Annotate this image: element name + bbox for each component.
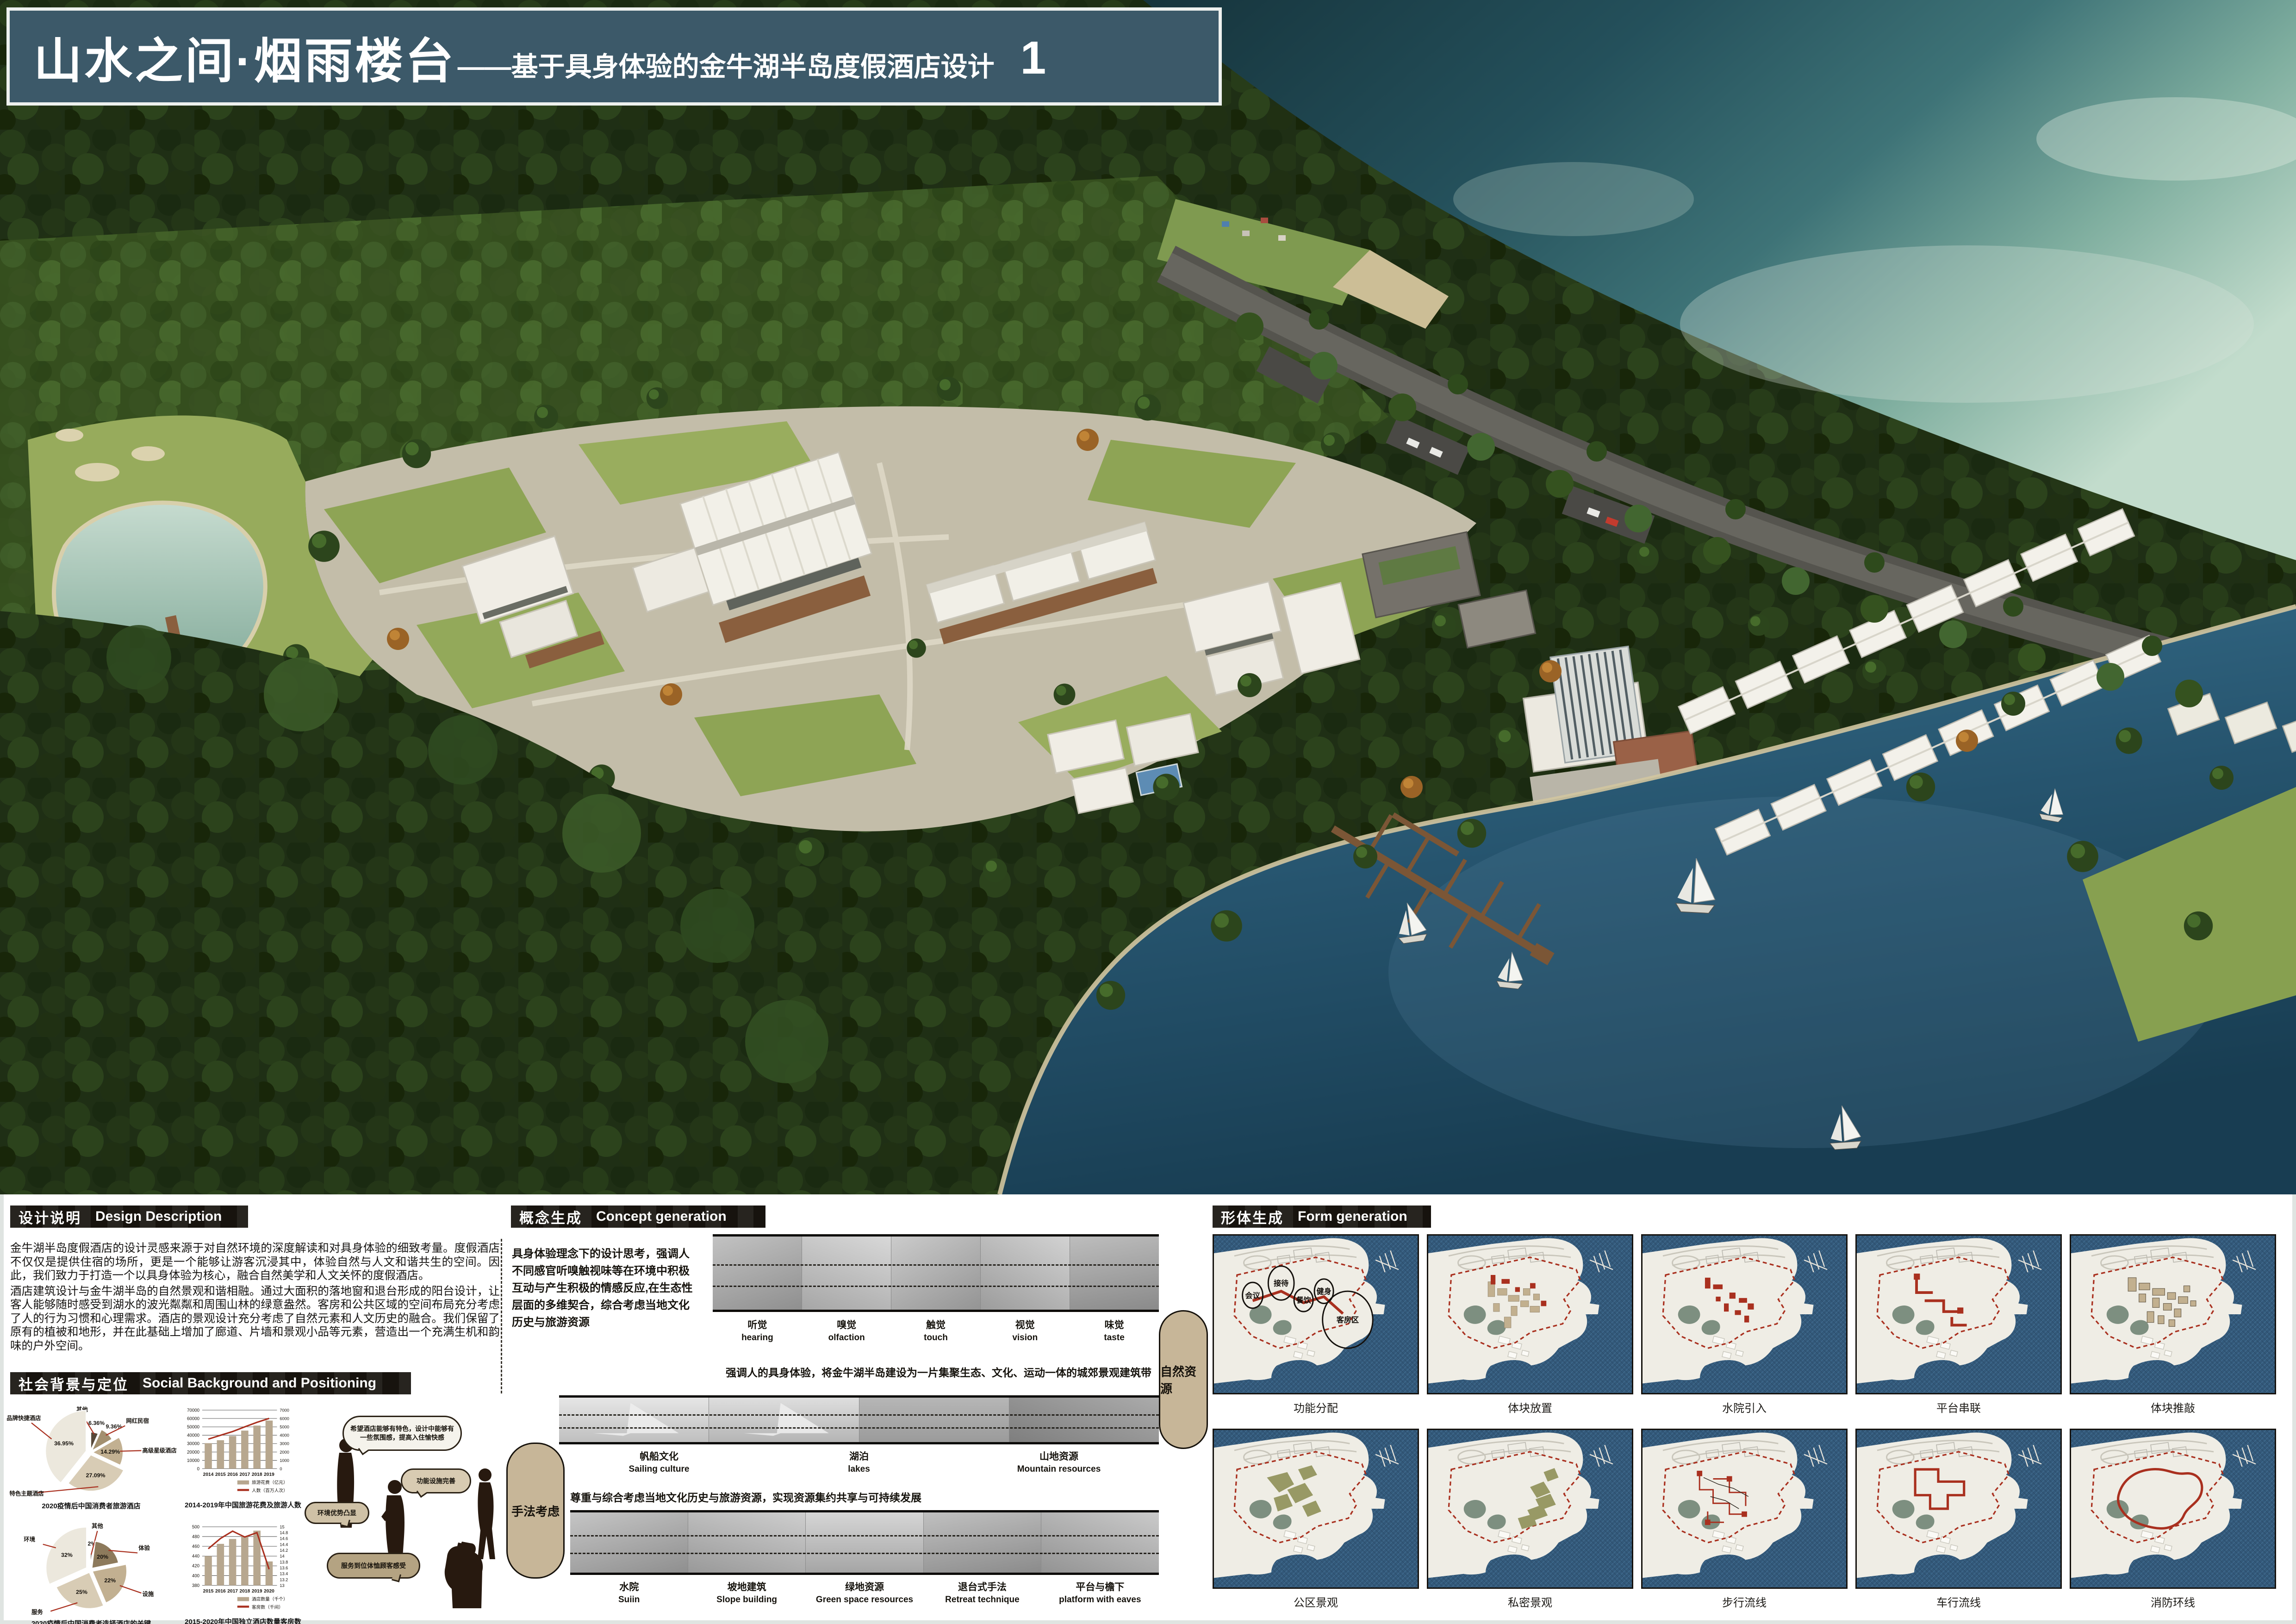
form-generation-row-1: 会议接待餐饮健身客房区功能分配	[1213, 1234, 2291, 1415]
bubble-text: 功能设施完善	[417, 1477, 455, 1486]
form-step-panel: 车行流线	[1855, 1429, 2062, 1610]
form-step-panel: 体块放置	[1427, 1234, 1633, 1415]
photo-olfaction	[802, 1237, 891, 1310]
svg-text:2019: 2019	[252, 1589, 262, 1594]
bilingual-label: 山地资源Mountain resources	[959, 1449, 1159, 1474]
page-number: 1	[1020, 29, 1046, 85]
natural-resources-capsule: 自然资源	[1159, 1310, 1208, 1449]
form-step-caption: 公区景观	[1213, 1593, 1419, 1610]
svg-text:体验: 体验	[138, 1544, 150, 1551]
title-main: 山水之间·烟雨楼台	[34, 22, 456, 92]
photo-lake	[859, 1398, 1009, 1442]
svg-text:22%: 22%	[104, 1577, 116, 1584]
svg-text:13.2: 13.2	[280, 1577, 288, 1582]
svg-text:27.09%: 27.09%	[86, 1472, 106, 1479]
form-step-caption: 功能分配	[1213, 1399, 1419, 1415]
resources-label-row: 帆船文化Sailing culture湖泊lakes山地资源Mountain r…	[559, 1449, 1159, 1474]
svg-text:14: 14	[280, 1554, 284, 1559]
svg-text:0: 0	[280, 1467, 282, 1471]
svg-text:2018: 2018	[240, 1589, 250, 1594]
photo-water-court	[570, 1512, 688, 1573]
form-step-panel: 体块推敲	[2070, 1234, 2276, 1415]
svg-text:60000: 60000	[187, 1416, 200, 1421]
svg-text:网红民宿: 网红民宿	[126, 1418, 149, 1424]
header-zh: 设计说明	[19, 1206, 81, 1227]
svg-text:2020: 2020	[264, 1589, 274, 1594]
site-diagram	[2070, 1429, 2276, 1589]
photo-vision	[981, 1237, 1070, 1310]
svg-text:其他: 其他	[92, 1523, 103, 1530]
svg-text:人数（百万人次）: 人数（百万人次）	[252, 1487, 288, 1493]
header-zh: 社会背景与定位	[19, 1373, 129, 1394]
bubble-text: 环境优势凸显	[317, 1509, 356, 1518]
form-step-panel: 会议接待餐饮健身客房区功能分配	[1213, 1234, 1419, 1415]
speech-bubble-2: 功能设施完善	[401, 1468, 471, 1493]
svg-text:会议: 会议	[1245, 1291, 1260, 1300]
form-step-panel: 私密景观	[1427, 1429, 1633, 1610]
svg-text:480: 480	[192, 1534, 200, 1539]
pie-chart-hotel-keys: 2%其他20%体验22%设施25%服务32%环境 2020疫情后中国消费者选择酒…	[3, 1521, 180, 1624]
svg-text:13.4: 13.4	[280, 1572, 288, 1576]
svg-text:客房区: 客房区	[1337, 1316, 1359, 1324]
section-header-form-generation: 形体生成 Form generation	[1213, 1206, 1431, 1228]
svg-text:25%: 25%	[76, 1589, 87, 1595]
svg-text:2018: 2018	[252, 1472, 262, 1477]
bar-chart-tourism: 0100002000030000400005000060000700000100…	[183, 1405, 303, 1510]
svg-text:2019: 2019	[264, 1472, 274, 1477]
photo-hearing	[713, 1237, 802, 1310]
form-step-caption: 步行流线	[1641, 1593, 1848, 1610]
header-en: Concept generation	[596, 1209, 727, 1224]
concept-intro-text: 具身体验理念下的设计思考，强调人不同感官听嗅触视味等在环境中积极互动与产生积极的…	[512, 1245, 698, 1331]
svg-text:设施: 设施	[142, 1590, 154, 1597]
svg-text:2015: 2015	[215, 1472, 226, 1477]
form-step-caption: 私密景观	[1427, 1593, 1633, 1610]
svg-text:14.2: 14.2	[280, 1548, 288, 1553]
speech-bubble-3: 环境优势凸显	[305, 1502, 369, 1524]
design-description-paragraph: 酒店建筑设计与金牛湖半岛的自然景观和谐相融。通过大面积的落地窗和退台形成的阳台设…	[10, 1285, 500, 1353]
photo-platform-eaves	[1041, 1512, 1159, 1573]
speech-bubble-4: 服务到位体恤顾客感受	[327, 1553, 420, 1579]
svg-text:酒店数量（千个）: 酒店数量（千个）	[252, 1596, 288, 1602]
bilingual-label: 触觉touch	[891, 1318, 981, 1343]
header-zh: 概念生成	[519, 1206, 582, 1227]
site-diagram	[1427, 1429, 1633, 1589]
svg-text:2015: 2015	[203, 1589, 214, 1594]
chart-caption: 2015-2020年中国独立酒店数量客房数	[185, 1617, 301, 1624]
bilingual-label: 帆船文化Sailing culture	[559, 1449, 759, 1474]
site-diagram	[1641, 1429, 1848, 1589]
photo-sailing-1	[559, 1398, 709, 1442]
svg-text:36.95%: 36.95%	[54, 1440, 74, 1447]
photo-mountain	[1009, 1398, 1159, 1442]
form-step-panel: 消防环线	[2070, 1429, 2276, 1610]
speech-bubble-1: 希望酒店能够有特色，设计中能够有一些氛围感，提高入住愉快感	[342, 1416, 462, 1451]
site-diagram	[1641, 1234, 1848, 1394]
svg-text:420: 420	[192, 1564, 200, 1569]
svg-text:2016: 2016	[215, 1589, 226, 1594]
concept-statement-1: 强调人的具身体验，将金牛湖半岛建设为一片集聚生态、文化、运动一体的城郊景观建筑带	[716, 1364, 1161, 1380]
chart-caption: 2020疫情后中国消费者选择酒店的关键	[31, 1618, 151, 1624]
form-step-caption: 体块放置	[1427, 1399, 1633, 1415]
svg-text:13.6: 13.6	[280, 1566, 288, 1570]
header-en: Design Description	[95, 1209, 222, 1224]
photo-retreat	[924, 1512, 1042, 1573]
svg-text:6000: 6000	[280, 1416, 289, 1421]
svg-text:30000: 30000	[187, 1442, 200, 1447]
resources-photo-strip	[559, 1395, 1159, 1444]
svg-text:健身: 健身	[1316, 1287, 1331, 1296]
header-en: Form generation	[1298, 1209, 1407, 1224]
svg-text:10000: 10000	[187, 1458, 200, 1463]
bilingual-label: 嗅觉olfaction	[802, 1318, 891, 1343]
form-step-caption: 体块推敲	[2070, 1399, 2276, 1415]
svg-text:1000: 1000	[280, 1458, 289, 1463]
techniques-photo-strip	[570, 1510, 1159, 1575]
bilingual-label: 湖泊lakes	[759, 1449, 959, 1474]
form-generation-row-2: 公区景观	[1213, 1429, 2291, 1610]
site-diagram	[1855, 1234, 2062, 1394]
svg-text:15: 15	[280, 1524, 284, 1529]
bilingual-label: 视觉vision	[980, 1318, 1070, 1343]
site-diagram: 会议接待餐饮健身客房区	[1213, 1234, 1419, 1394]
svg-text:400: 400	[192, 1574, 200, 1579]
form-step-caption: 水院引入	[1641, 1399, 1848, 1415]
bubble-text: 希望酒店能够有特色，设计中能够有一些氛围感，提高入住愉快感	[348, 1424, 456, 1442]
svg-text:0: 0	[197, 1467, 200, 1472]
site-diagram	[1427, 1234, 1633, 1394]
photo-slope-building	[688, 1512, 806, 1573]
svg-text:13.8: 13.8	[280, 1560, 288, 1564]
chart-caption: 2020疫情后中国消费者旅游酒店	[42, 1501, 140, 1511]
svg-text:环境: 环境	[24, 1536, 35, 1543]
svg-text:20000: 20000	[187, 1450, 200, 1455]
section-header-concept: 概念生成 Concept generation	[511, 1206, 765, 1228]
svg-text:4000: 4000	[280, 1433, 289, 1438]
svg-text:14.29%: 14.29%	[100, 1449, 120, 1455]
svg-text:5000: 5000	[280, 1425, 289, 1430]
svg-text:6.36%: 6.36%	[88, 1420, 105, 1426]
svg-text:3000: 3000	[280, 1442, 289, 1446]
title-banner: 山水之间·烟雨楼台 ——基于具身体验的金牛湖半岛度假酒店设计 1	[6, 7, 1222, 106]
site-diagram	[1213, 1429, 1419, 1589]
form-step-panel: 平台串联	[1855, 1234, 2062, 1415]
svg-text:2016: 2016	[227, 1472, 238, 1477]
header-zh: 形体生成	[1221, 1206, 1284, 1227]
svg-text:50000: 50000	[187, 1425, 200, 1430]
senses-label-row: 听觉hearing嗅觉olfaction触觉touch视觉vision味觉tas…	[713, 1318, 1159, 1343]
photo-green-space	[806, 1512, 924, 1573]
svg-text:440: 440	[192, 1554, 200, 1559]
svg-text:2000: 2000	[280, 1450, 289, 1455]
svg-text:餐饮: 餐饮	[1296, 1296, 1311, 1305]
form-step-panel: 公区景观	[1213, 1429, 1419, 1610]
form-step-panel: 步行流线	[1641, 1429, 1848, 1610]
site-diagram	[2070, 1234, 2276, 1394]
svg-text:13: 13	[280, 1583, 284, 1588]
design-description-text: 金牛湖半岛度假酒店的设计灵感来源于对自然环境的深度解读和对具身体验的细致考量。度…	[10, 1242, 500, 1355]
bilingual-label: 水院Suiin	[570, 1580, 688, 1605]
svg-text:500: 500	[192, 1524, 200, 1530]
section-header-design-description: 设计说明 Design Description	[10, 1206, 248, 1228]
concept-statement-2: 尊重与综合考虑当地文化历史与旅游资源，实现资源集约共享与可持续发展	[570, 1489, 1107, 1505]
site-diagram	[1855, 1429, 2062, 1589]
bar-chart-hotels: 3804004204404604805001313.213.413.613.81…	[183, 1522, 303, 1624]
capsule-label: 手法考虑	[511, 1502, 560, 1519]
column-divider	[501, 1239, 502, 1393]
svg-text:旅游花费（亿元）: 旅游花费（亿元）	[252, 1480, 288, 1486]
svg-text:380: 380	[192, 1583, 200, 1588]
svg-text:460: 460	[192, 1544, 200, 1549]
svg-text:14.6: 14.6	[280, 1537, 288, 1541]
bilingual-label: 平台与檐下platform with eaves	[1041, 1580, 1159, 1605]
svg-text:14.4: 14.4	[280, 1542, 288, 1547]
svg-text:高级星级酒店: 高级星级酒店	[142, 1447, 176, 1454]
svg-text:20%: 20%	[97, 1554, 108, 1560]
svg-text:品牌快捷酒店: 品牌快捷酒店	[6, 1414, 41, 1421]
form-step-caption: 平台串联	[1855, 1399, 2062, 1415]
svg-text:70000: 70000	[187, 1408, 200, 1413]
svg-text:2017: 2017	[227, 1589, 238, 1594]
svg-text:40000: 40000	[187, 1433, 200, 1438]
svg-text:接待: 接待	[1274, 1279, 1288, 1287]
bilingual-label: 退台式手法Retreat technique	[923, 1580, 1041, 1605]
presentation-board: 山水之间·烟雨楼台 ——基于具身体验的金牛湖半岛度假酒店设计 1 设计说明 De…	[0, 0, 2296, 1624]
svg-text:特色主题酒店: 特色主题酒店	[9, 1490, 44, 1497]
svg-text:32%: 32%	[61, 1552, 73, 1558]
senses-photo-strip	[713, 1234, 1159, 1312]
svg-text:客房数（千间）: 客房数（千间）	[252, 1604, 283, 1610]
svg-text:服务: 服务	[31, 1609, 43, 1616]
form-step-caption: 车行流线	[1855, 1593, 2062, 1610]
photo-touch	[891, 1237, 981, 1310]
svg-text:14.8: 14.8	[280, 1530, 288, 1535]
bilingual-label: 绿地资源Green space resources	[806, 1580, 923, 1605]
design-description-paragraph: 金牛湖半岛度假酒店的设计灵感来源于对自然环境的深度解读和对具身体验的细致考量。度…	[10, 1242, 500, 1283]
aerial-render-image	[0, 0, 2296, 1194]
techniques-label-row: 水院Suiin坡地建筑Slope building绿地资源Green space…	[570, 1580, 1159, 1605]
form-step-caption: 消防环线	[2070, 1593, 2276, 1610]
technique-capsule: 手法考虑	[506, 1443, 565, 1579]
consumer-silhouettes: 希望酒店能够有特色，设计中能够有一些氛围感，提高入住愉快感 功能设施完善 环境优…	[300, 1389, 519, 1621]
form-step-panel: 水院引入	[1641, 1234, 1848, 1415]
title-subtitle: ——基于具身体验的金牛湖半岛度假酒店设计	[458, 29, 995, 84]
svg-text:2017: 2017	[240, 1472, 250, 1477]
chart-caption: 2014-2019年中国旅游花费及旅游人数	[185, 1500, 301, 1510]
pie-chart-hotel-types: 6.36%其他9.36%网红民宿14.29%高级星级酒店27.09%特色主题酒店…	[3, 1404, 180, 1511]
photo-taste	[1070, 1237, 1159, 1310]
photo-sailing-2	[709, 1398, 859, 1442]
bilingual-label: 听觉hearing	[713, 1318, 802, 1343]
bilingual-label: 坡地建筑Slope building	[688, 1580, 805, 1605]
svg-text:7000: 7000	[280, 1408, 289, 1412]
capsule-label: 自然资源	[1160, 1362, 1207, 1397]
bubble-text: 服务到位体恤顾客感受	[341, 1562, 406, 1570]
bilingual-label: 味觉taste	[1070, 1318, 1159, 1343]
svg-text:2014: 2014	[203, 1472, 214, 1477]
